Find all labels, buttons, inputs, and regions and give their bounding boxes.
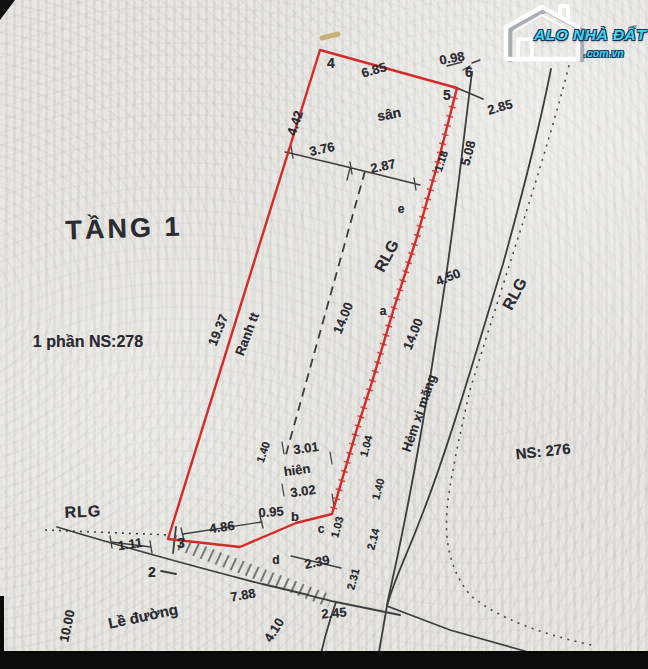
corner-artifact xyxy=(0,0,15,20)
interior-dashed-line xyxy=(285,171,365,458)
scan-bottom-bar xyxy=(0,651,648,669)
label-dim-0-95: 0.95 xyxy=(258,504,284,521)
label-point-2: 2 xyxy=(148,564,156,580)
label-point-d: d xyxy=(272,553,279,567)
watermark-brand-text: ALO NHÀ ĐẤT xyxy=(534,26,646,44)
label-point-6: 6 xyxy=(465,64,473,80)
floor-plan-canvas: TẦNG 11 phần NS:278NS: 276RLGRLGRLGsânhi… xyxy=(0,0,648,669)
label-point-a: a xyxy=(380,304,387,318)
scan-left-edge xyxy=(0,596,4,669)
label-dim-2-45: 2.45 xyxy=(321,604,348,621)
label-point-b: b xyxy=(291,509,299,524)
label-point-3: 3 xyxy=(177,535,185,551)
rlg-dotted-left xyxy=(45,530,170,535)
label-point-5: 5 xyxy=(443,87,451,103)
label-point-e: e xyxy=(398,202,405,216)
label-rlg-left: RLG xyxy=(64,502,101,521)
label-title-tang-1: TẦNG 1 xyxy=(65,211,183,246)
point-2-tick xyxy=(161,571,176,574)
label-parcel-ns278: 1 phần NS:278 xyxy=(33,333,143,351)
label-point-4: 4 xyxy=(327,55,335,71)
label-point-c: c xyxy=(318,522,325,536)
highlight-dash xyxy=(322,34,338,38)
watermark-domain-text: .com.vn xyxy=(584,47,624,59)
alo-nha-dat-watermark: ALO NHÀ ĐẤT .com.vn xyxy=(498,1,648,67)
